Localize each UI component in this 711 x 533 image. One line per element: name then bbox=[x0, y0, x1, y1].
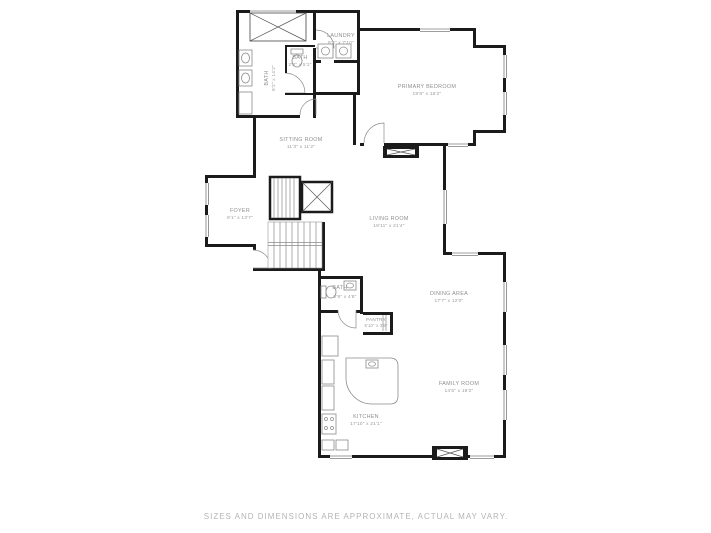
label-laundry: LAUNDRY bbox=[327, 33, 355, 39]
dims-dining-area: 17'7" x 12'0" bbox=[435, 298, 464, 304]
label-foyer: FOYER bbox=[230, 208, 250, 214]
kitchen-island bbox=[346, 358, 398, 404]
dims-pantry: 5'10" x 3'9" bbox=[364, 323, 387, 328]
dims-lower-bath: 6'9" x 4'8" bbox=[333, 294, 356, 300]
label-pantry: PANTRY bbox=[366, 317, 386, 322]
label-kitchen: KITCHEN bbox=[353, 414, 379, 420]
label-living-room: LIVING ROOM bbox=[369, 216, 408, 222]
floor-plan-drawing: BATH 9'2" x 14'2" BATH 2'3" x 5'1" LAUND… bbox=[0, 0, 711, 533]
label-family-room: FAMILY ROOM bbox=[439, 381, 479, 387]
dims-primary-bedroom: 19'8" x 16'2" bbox=[413, 91, 442, 97]
elevator-shafts bbox=[270, 177, 332, 219]
label-primary-bedroom: PRIMARY BEDROOM bbox=[398, 84, 456, 90]
dims-living-room: 19'11" x 21'4" bbox=[373, 223, 405, 229]
floor-plan-page: BATH 9'2" x 14'2" BATH 2'3" x 5'1" LAUND… bbox=[0, 0, 711, 533]
disclaimer-text: SIZES AND DIMENSIONS ARE APPROXIMATE, AC… bbox=[204, 512, 508, 521]
dims-sitting-room: 11'3" x 11'2" bbox=[287, 144, 315, 150]
label-closet-bath: BATH bbox=[264, 70, 270, 85]
dims-small-bath: 2'3" x 5'1" bbox=[288, 62, 311, 68]
label-dining-area: DINING AREA bbox=[430, 291, 468, 297]
label-sitting-room: SITTING ROOM bbox=[279, 137, 322, 143]
washer-dryer-icon bbox=[318, 44, 351, 58]
vanity-sinks-icon bbox=[239, 50, 252, 114]
fireplace-living bbox=[383, 146, 419, 158]
dims-family-room: 14'5" x 19'2" bbox=[445, 388, 474, 394]
label-small-bath: BATH bbox=[292, 55, 307, 61]
dims-laundry: 8'3" x 7'10" bbox=[328, 40, 354, 46]
kitchen-appliances bbox=[322, 336, 348, 450]
dims-closet-bath: 9'2" x 14'2" bbox=[271, 65, 277, 91]
fireplace-family bbox=[432, 446, 468, 460]
dims-foyer: 9'1" x 13'7" bbox=[227, 215, 253, 221]
closet-x-box bbox=[250, 13, 306, 41]
label-lower-bath: BATH bbox=[332, 285, 347, 291]
staircase bbox=[268, 222, 322, 268]
dims-kitchen: 17'10" x 21'1" bbox=[350, 421, 382, 427]
